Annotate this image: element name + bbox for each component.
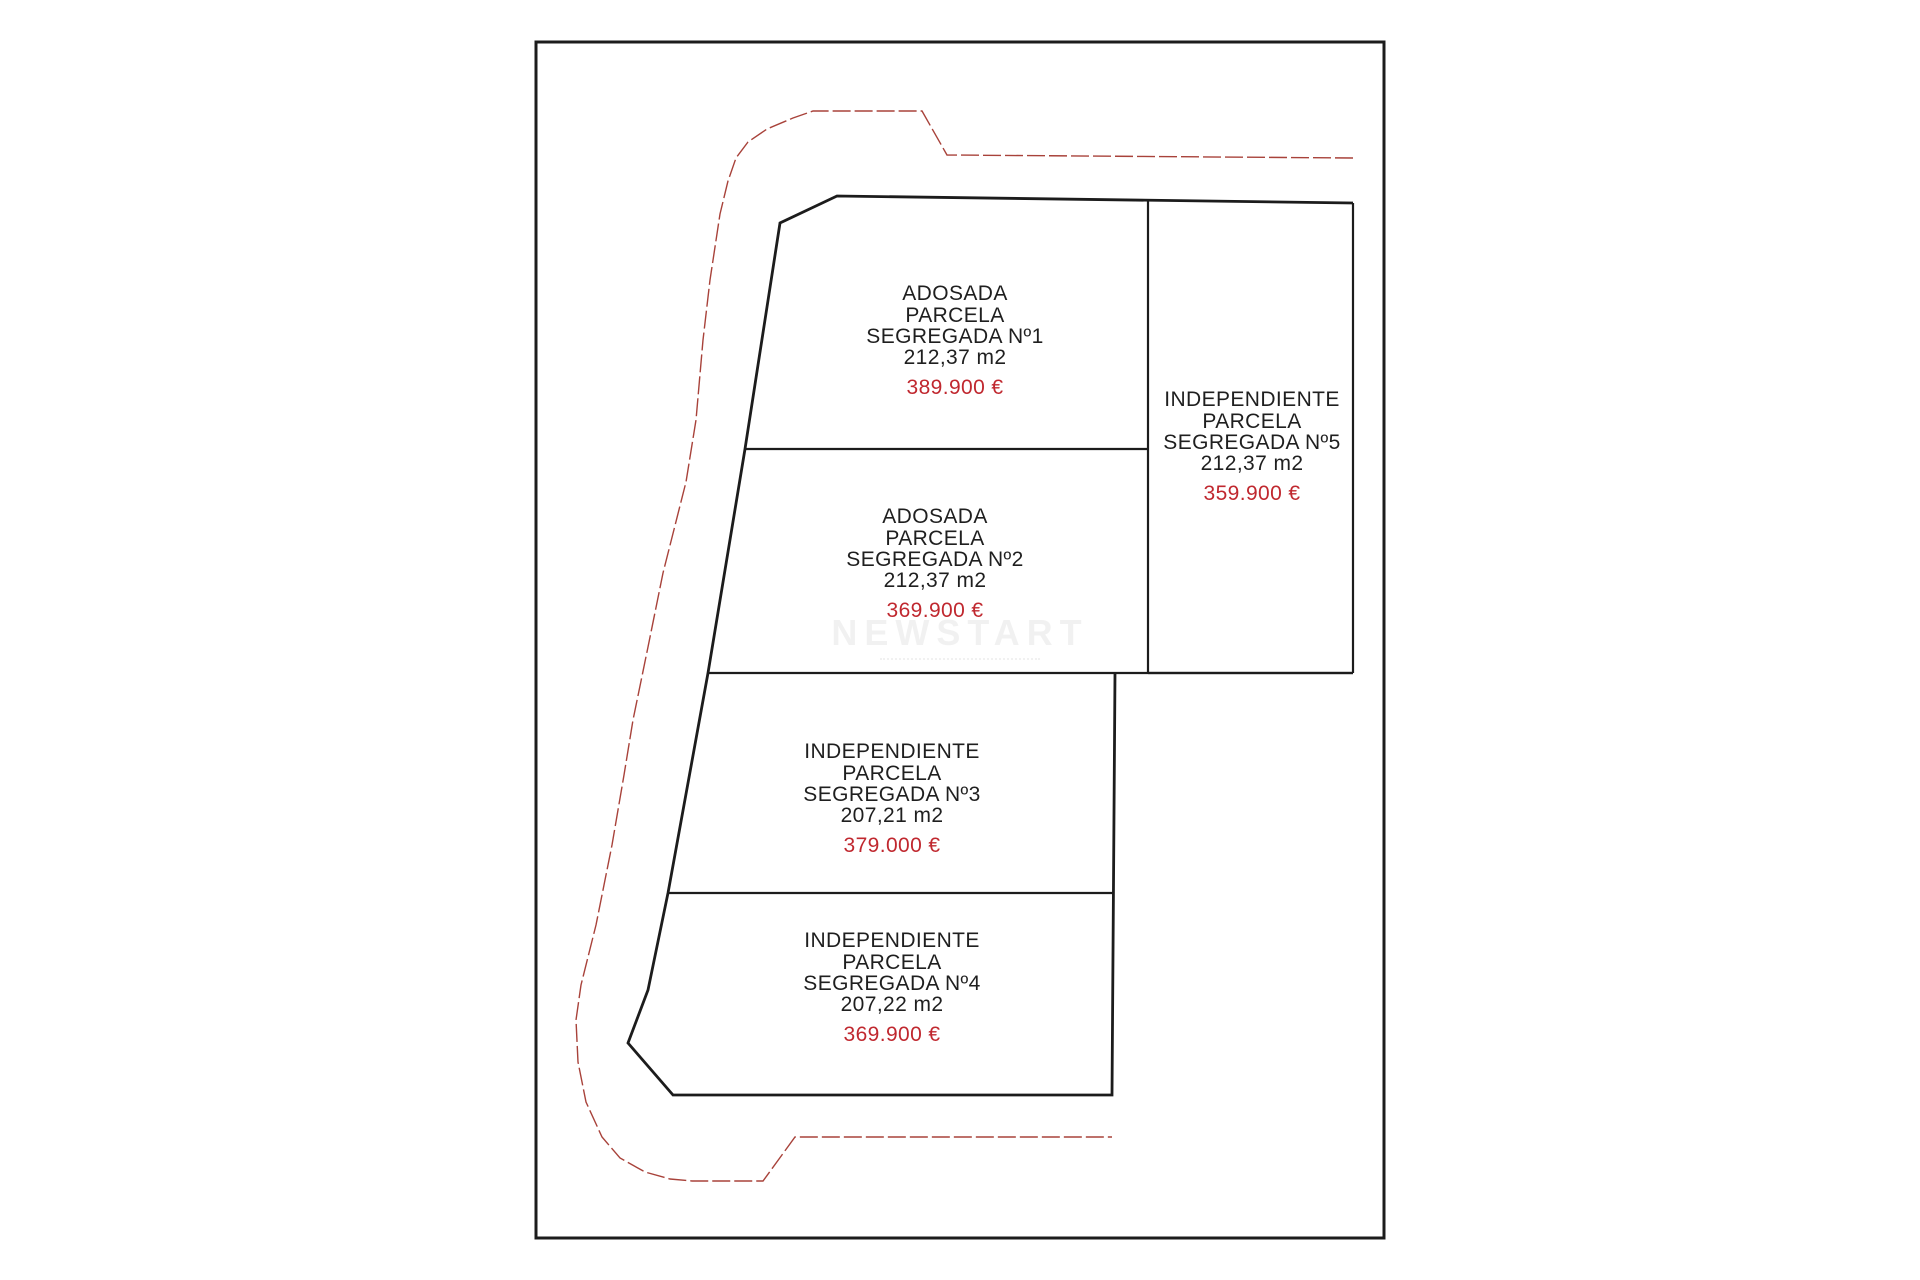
parcel-1-area: 212,37 m2 [795,347,1115,368]
drawing-frame [536,42,1384,1238]
parcel-4-parcela: PARCELA [732,952,1052,973]
parcel-1-number: SEGREGADA Nº1 [795,326,1115,347]
parcel-4-number: SEGREGADA Nº4 [732,973,1052,994]
parcel-1-label: ADOSADA PARCELA SEGREGADA Nº1 212,37 m2 … [795,283,1115,398]
parcel-4-label: INDEPENDIENTE PARCELA SEGREGADA Nº4 207,… [732,930,1052,1045]
parcel-3-area: 207,21 m2 [732,805,1052,826]
parcel-3-label: INDEPENDIENTE PARCELA SEGREGADA Nº3 207,… [732,741,1052,856]
parcel-4-price: 369.900 € [732,1024,1052,1045]
parcel-1-parcela: PARCELA [795,305,1115,326]
parcel-1-type: ADOSADA [795,283,1115,304]
parcel-5-price: 359.900 € [1092,483,1412,504]
parcel-1-price: 389.900 € [795,377,1115,398]
parcel-2-price: 369.900 € [775,600,1095,621]
parcel-5-area: 212,37 m2 [1092,453,1412,474]
parcel-5-parcela: PARCELA [1092,411,1412,432]
parcel-plan-svg [0,0,1920,1280]
parcel-5-number: SEGREGADA Nº5 [1092,432,1412,453]
parcel-4-area: 207,22 m2 [732,994,1052,1015]
parcel-2-parcela: PARCELA [775,528,1095,549]
parcel-5-type: INDEPENDIENTE [1092,389,1412,410]
parcel-4-type: INDEPENDIENTE [732,930,1052,951]
parcel-2-label: ADOSADA PARCELA SEGREGADA Nº2 212,37 m2 … [775,506,1095,621]
parcel-3-parcela: PARCELA [732,763,1052,784]
parcel-2-type: ADOSADA [775,506,1095,527]
site-plan-drawing: NEWSTART ADOSADA PARCELA SEGREGADA Nº1 2… [0,0,1920,1280]
parcel-3-number: SEGREGADA Nº3 [732,784,1052,805]
parcel-3-price: 379.000 € [732,835,1052,856]
parcel-2-number: SEGREGADA Nº2 [775,549,1095,570]
parcel-3-type: INDEPENDIENTE [732,741,1052,762]
parcel-2-area: 212,37 m2 [775,570,1095,591]
parcel-5-label: INDEPENDIENTE PARCELA SEGREGADA Nº5 212,… [1092,389,1412,504]
